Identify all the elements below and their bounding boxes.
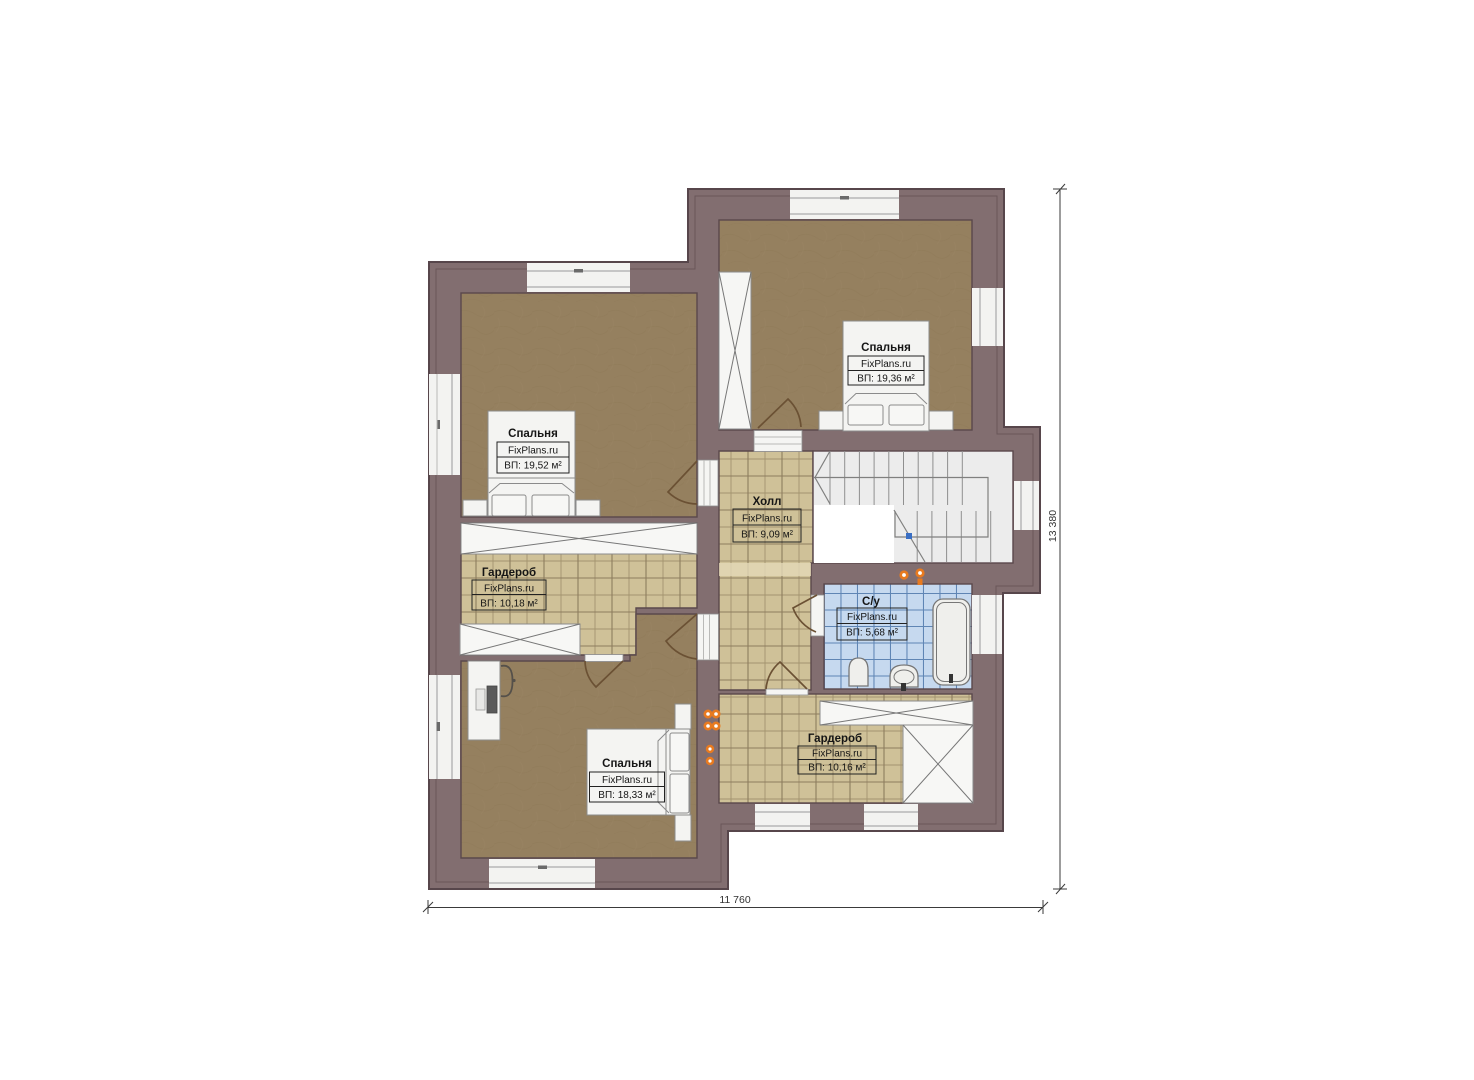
svg-text:FixPlans.ru: FixPlans.ru (847, 612, 897, 623)
svg-text:Спальня: Спальня (861, 342, 911, 354)
svg-text:FixPlans.ru: FixPlans.ru (812, 749, 862, 760)
svg-text:11 760: 11 760 (719, 894, 750, 906)
svg-text:ВП: 18,33 м²: ВП: 18,33 м² (598, 790, 656, 801)
svg-text:ВП: 19,36 м²: ВП: 19,36 м² (857, 374, 915, 385)
svg-text:FixPlans.ru: FixPlans.ru (484, 584, 534, 595)
svg-text:ВП: 10,16 м²: ВП: 10,16 м² (808, 763, 866, 774)
svg-text:Гардероб: Гардероб (808, 733, 862, 745)
svg-text:ВП: 19,52 м²: ВП: 19,52 м² (504, 461, 562, 472)
svg-text:Холл: Холл (753, 496, 782, 508)
svg-text:FixPlans.ru: FixPlans.ru (602, 775, 652, 786)
svg-text:Гардероб: Гардероб (482, 567, 536, 579)
svg-text:ВП: 5,68 м²: ВП: 5,68 м² (846, 628, 899, 639)
svg-text:13 380: 13 380 (1047, 510, 1059, 542)
svg-text:FixPlans.ru: FixPlans.ru (508, 446, 558, 457)
svg-text:FixPlans.ru: FixPlans.ru (742, 514, 792, 525)
svg-text:FixPlans.ru: FixPlans.ru (861, 359, 911, 370)
svg-text:Спальня: Спальня (602, 758, 652, 770)
svg-text:ВП: 10,18 м²: ВП: 10,18 м² (480, 599, 538, 610)
svg-text:ВП: 9,09 м²: ВП: 9,09 м² (741, 530, 794, 541)
svg-text:Спальня: Спальня (508, 428, 558, 440)
svg-text:С/у: С/у (862, 596, 881, 608)
